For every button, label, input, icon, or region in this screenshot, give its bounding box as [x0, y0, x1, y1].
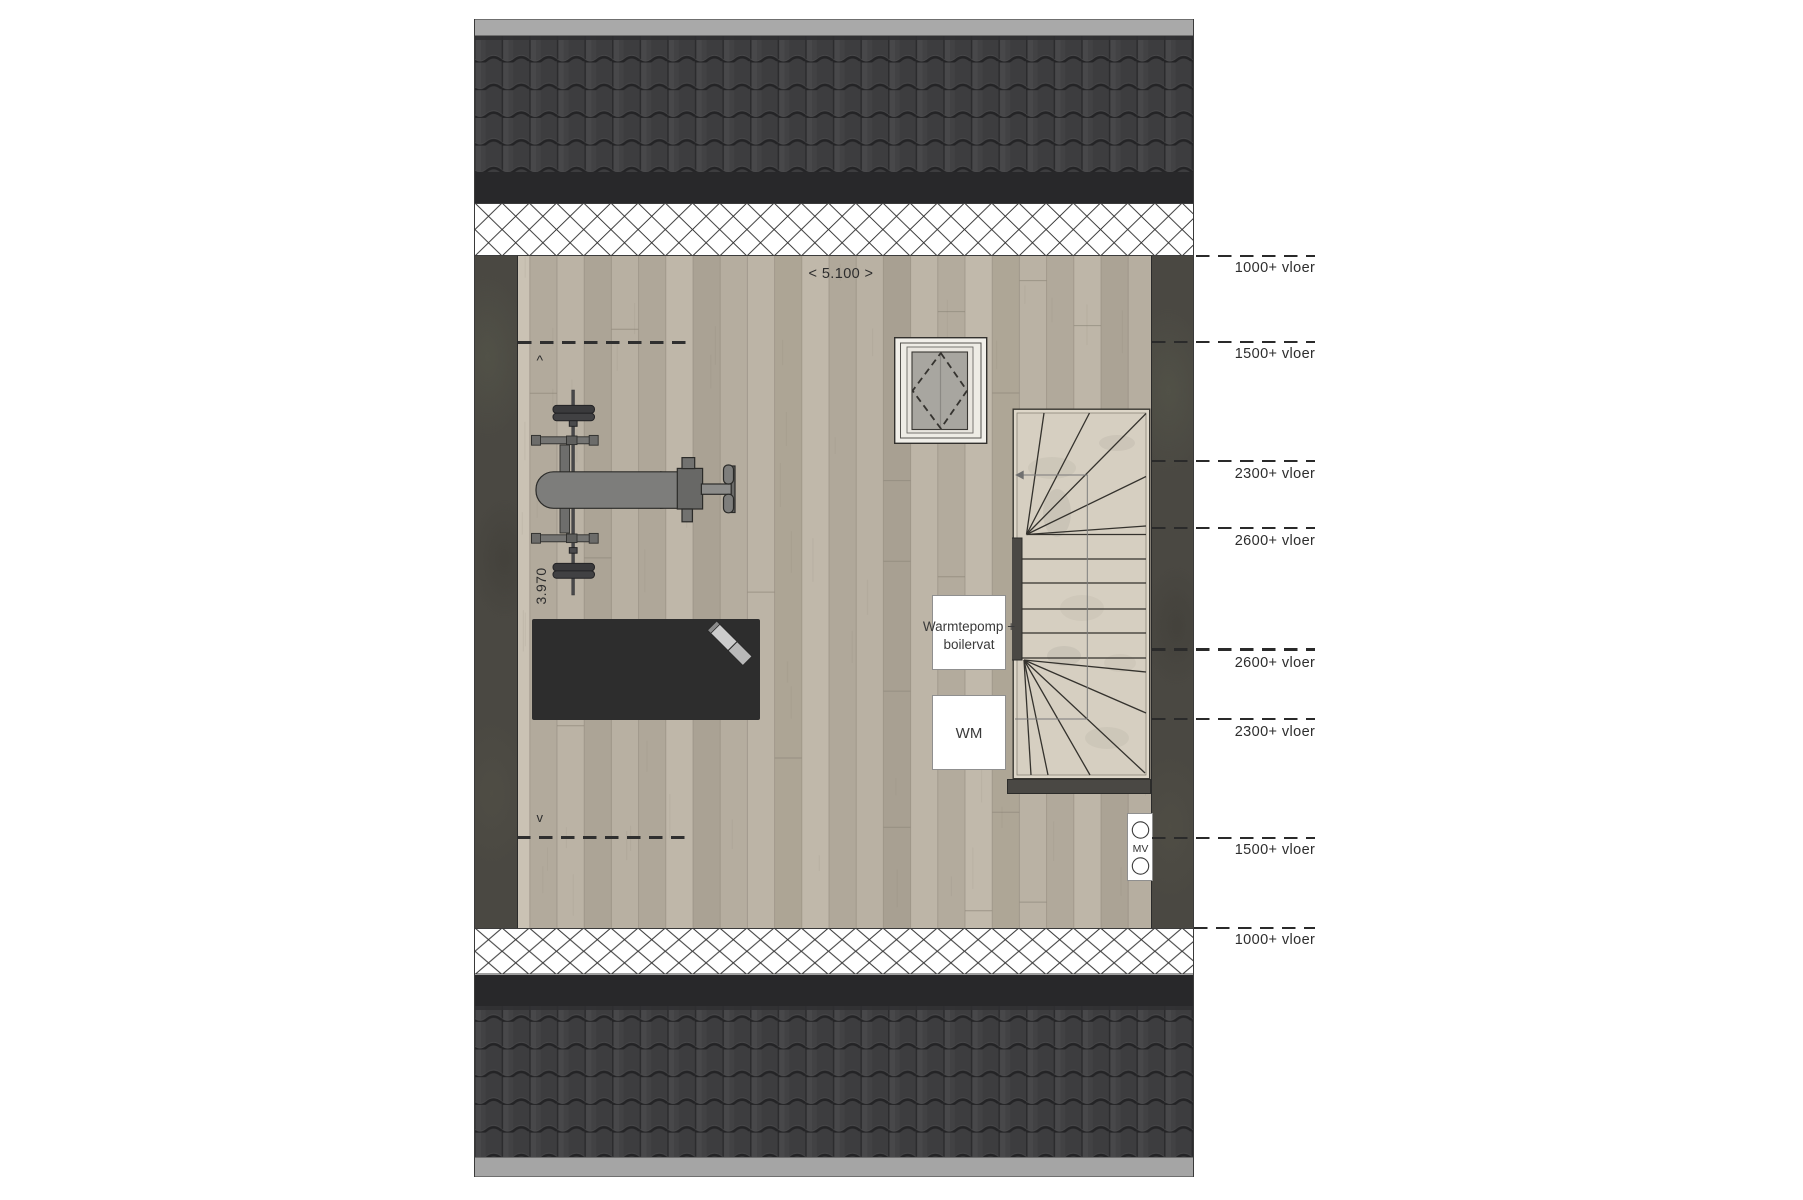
svg-text:MV: MV: [1133, 843, 1149, 855]
